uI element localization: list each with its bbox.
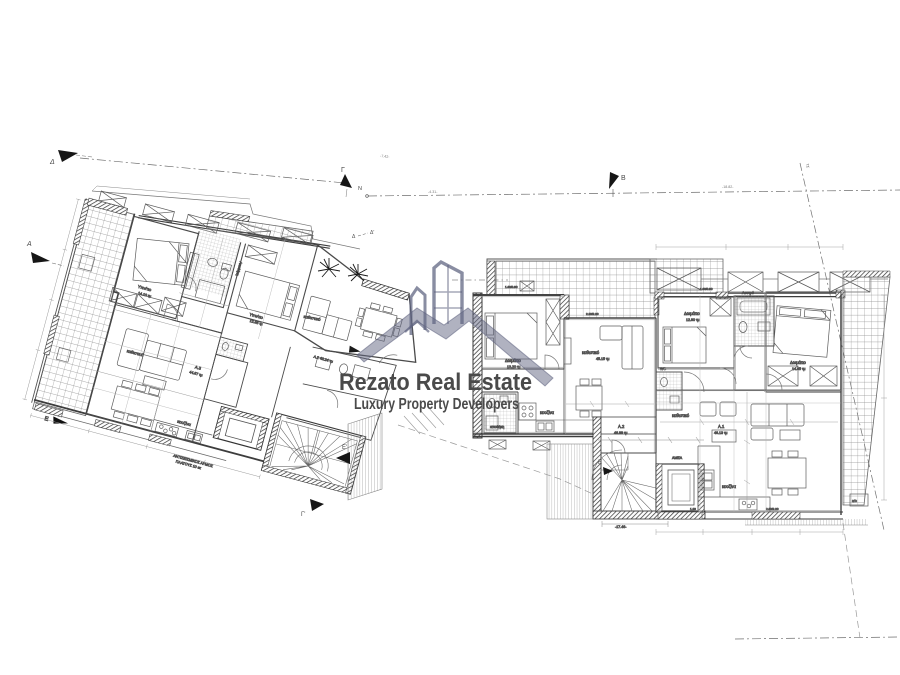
svg-text:Λουτρό: Λουτρό <box>742 291 754 295</box>
svg-text:45.15 τμ: 45.15 τμ <box>596 357 609 361</box>
svg-text:Δωμάτιο: Δωμάτιο <box>684 311 700 316</box>
svg-text:46.13 τμ: 46.13 τμ <box>714 431 727 435</box>
svg-text:1.20: 1.20 <box>690 507 696 511</box>
svg-text:12.90 τμ: 12.90 τμ <box>686 318 699 322</box>
svg-text:-18.82-: -18.82- <box>722 185 734 189</box>
svg-text:Δωμάτιο: Δωμάτιο <box>790 360 806 365</box>
svg-text:WC: WC <box>660 367 666 371</box>
svg-text:κουζίνα: κουζίνα <box>540 410 555 415</box>
svg-text:E: E <box>598 460 602 466</box>
svg-text:Luxury Property Developers: Luxury Property Developers <box>354 396 519 413</box>
svg-text:-17.46-: -17.46- <box>615 525 627 529</box>
svg-text:καθιστικό: καθιστικό <box>582 350 600 355</box>
svg-text:Rezato Real Estate: Rezato Real Estate <box>339 369 532 396</box>
svg-text:Δ': Δ' <box>370 230 374 236</box>
svg-text:ΑΜΕΑ: ΑΜΕΑ <box>672 456 683 460</box>
svg-text:Γ': Γ' <box>301 512 305 518</box>
svg-text:κουζίνα: κουζίνα <box>722 484 737 489</box>
svg-text:-4.31-: -4.31- <box>428 190 438 194</box>
svg-text:E': E' <box>342 445 347 451</box>
svg-text:2.80/2.20: 2.80/2.20 <box>766 507 779 511</box>
svg-text:1.60/0.90: 1.60/0.90 <box>505 285 518 289</box>
svg-text:1.60/0.90: 1.60/0.90 <box>700 287 713 291</box>
svg-text:καθιστικό: καθιστικό <box>672 413 690 418</box>
svg-text:Γ: Γ <box>341 167 345 174</box>
svg-text:Α.2: Α.2 <box>618 424 625 429</box>
svg-text:Δ: Δ <box>49 159 55 166</box>
svg-text:N: N <box>358 186 362 192</box>
svg-text:2.20/2.20: 2.20/2.20 <box>586 312 599 316</box>
svg-text:a/c: a/c <box>852 499 857 503</box>
svg-text:αποθήκη: αποθήκη <box>490 425 504 429</box>
svg-text:Α.1: Α.1 <box>718 424 725 429</box>
svg-text:A: A <box>26 241 32 248</box>
svg-text:46.99 τμ: 46.99 τμ <box>614 431 627 435</box>
svg-text:B: B <box>621 175 626 182</box>
